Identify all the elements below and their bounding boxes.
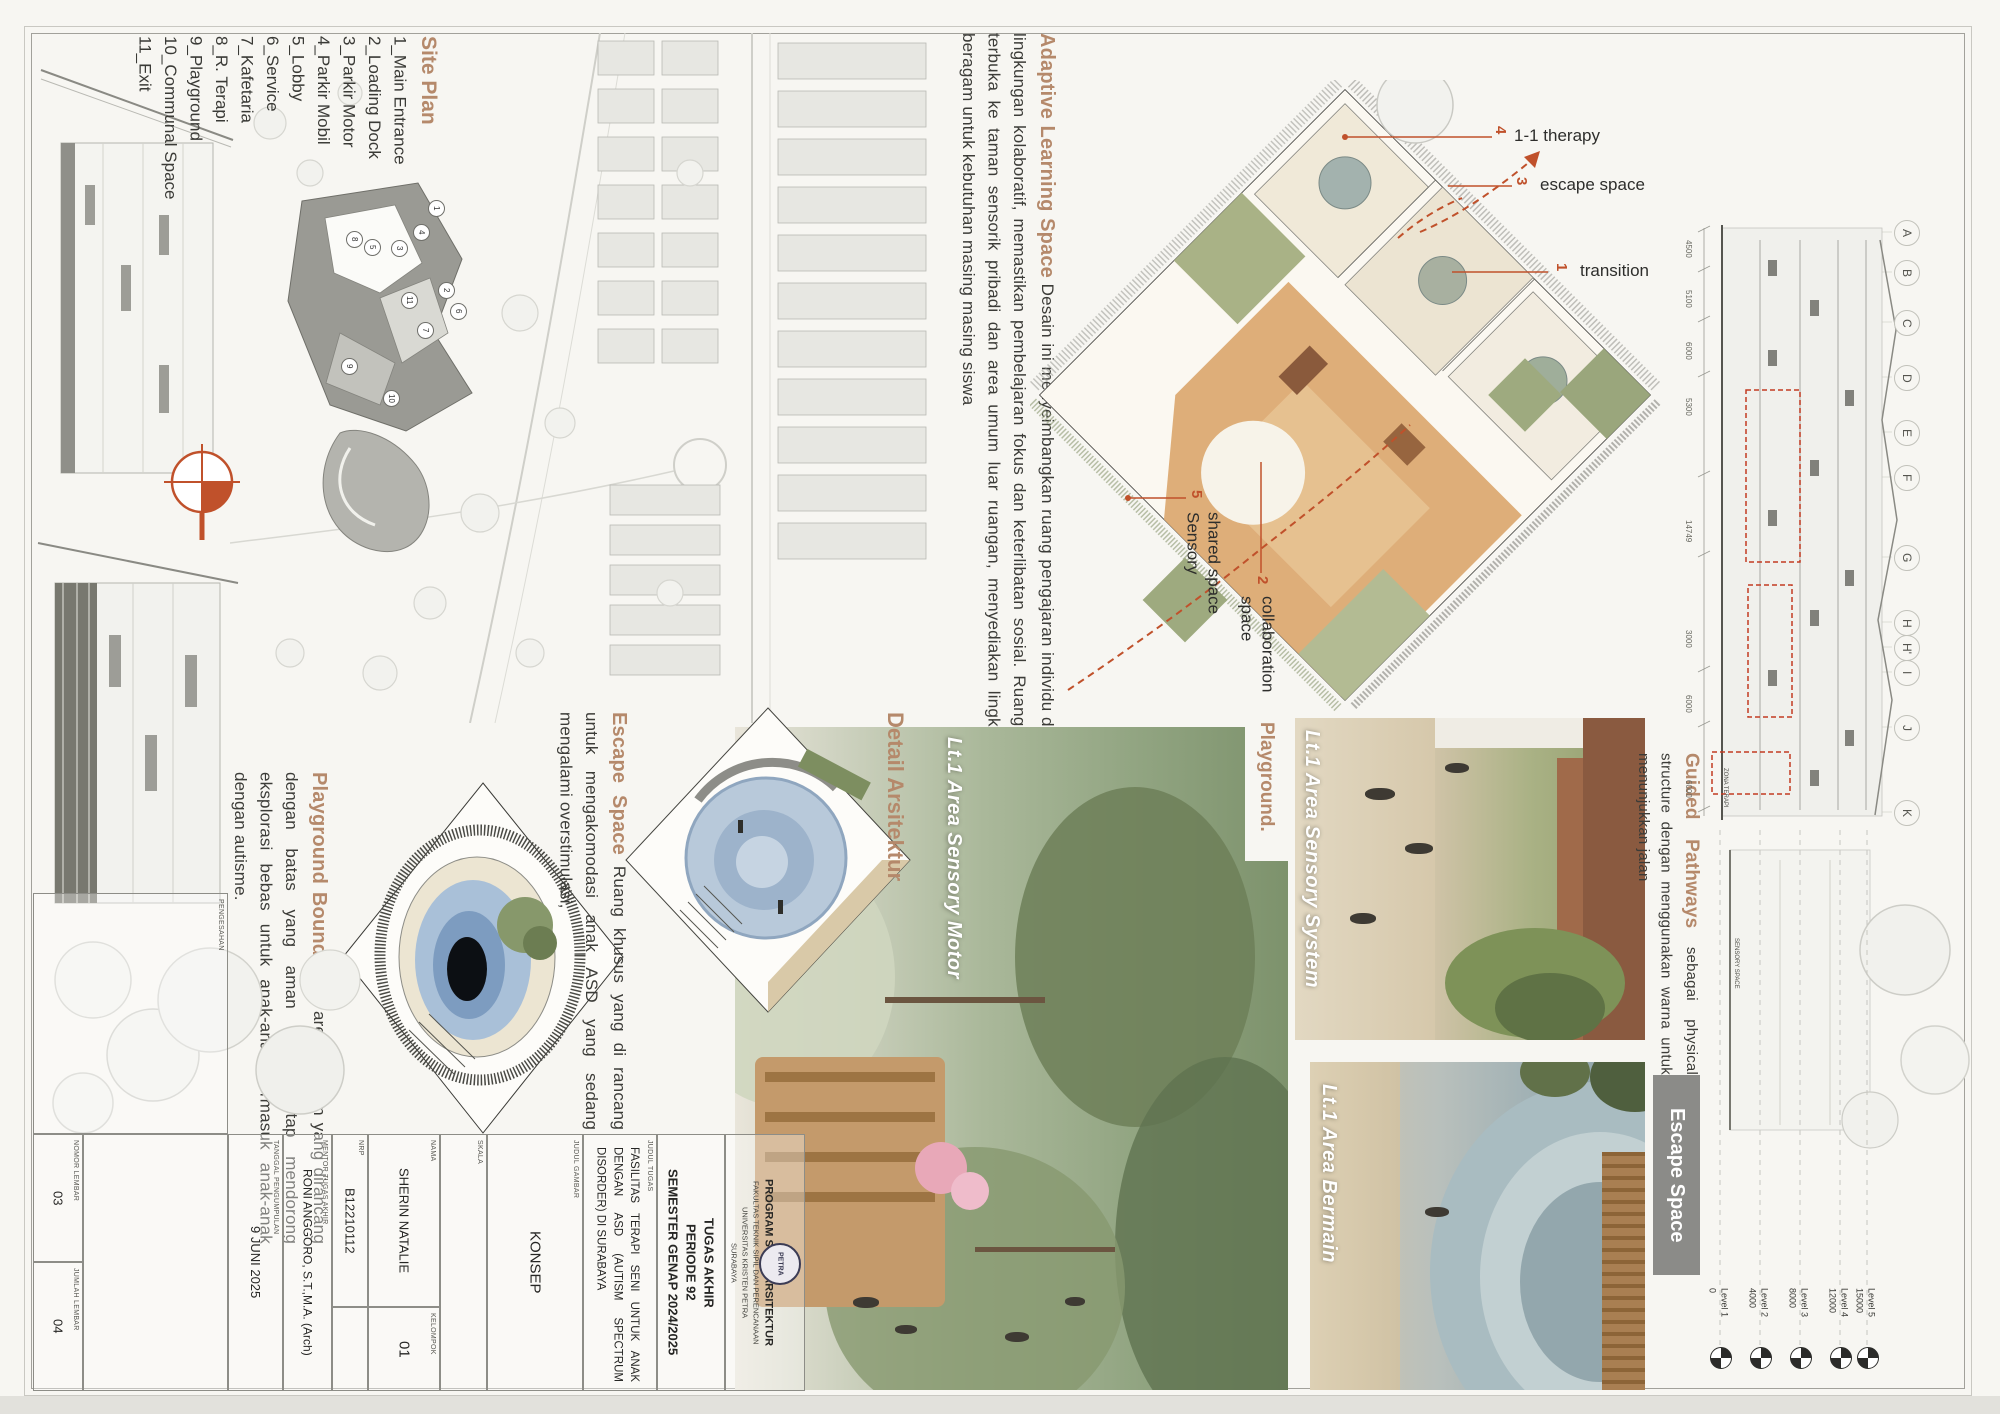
annotation-escape-space: escape space bbox=[1540, 175, 1645, 195]
escape-space-title: Escape Space bbox=[608, 712, 630, 855]
elevation-drawing bbox=[1690, 50, 1970, 1350]
dim-value: 6000 bbox=[1684, 780, 1693, 798]
level-label-5: Level 515000 bbox=[1853, 1288, 1877, 1317]
titleblock-prodi: PROGRAM STUDI ARSITEKTUR FAKULTAS TEKNIK… bbox=[725, 1134, 805, 1391]
grid-bubble-c: C bbox=[1894, 310, 1920, 336]
legend-item: 5_Lobby bbox=[285, 36, 311, 366]
legend-item: 8_R. Terapi bbox=[209, 36, 235, 366]
titleblock-nomor: NOMOR LEMBAR 03 bbox=[33, 1134, 83, 1262]
escape-space-text: Escape Space Ruang khusus yang di rancan… bbox=[538, 712, 634, 1130]
titleblock-judul-tugas: JUDUL TUGAS FASILITAS TERAPI SENI UNTUK … bbox=[583, 1134, 657, 1391]
legend-item: 10_Communal Space bbox=[158, 36, 184, 366]
annotation-number-4: 4 bbox=[1492, 126, 1509, 134]
titleblock-kelompok: KELOMPOK 01 bbox=[368, 1307, 440, 1391]
render-sensory-system bbox=[1295, 718, 1645, 1040]
grid-bubble-d: D bbox=[1894, 365, 1920, 391]
dim-value: 3000 bbox=[1684, 630, 1693, 648]
level-marker-icon bbox=[1790, 1347, 1812, 1369]
legend-item: 4_Parkir Mobil bbox=[311, 36, 337, 366]
legend-item: 1_Main Entrance bbox=[387, 36, 413, 366]
plan-badge-10: 10 bbox=[383, 390, 400, 407]
grid-bubble-i: I bbox=[1894, 660, 1920, 686]
titleblock-empty bbox=[83, 1134, 228, 1391]
render-label-bermain: Lt.1 Area Bermain bbox=[1317, 1084, 1340, 1263]
annotation-number-1: 1 bbox=[1553, 263, 1570, 271]
sensory-space-tag: SENSORY SPACE bbox=[1733, 938, 1739, 989]
titleblock-judul-gambar: JUDUL GAMBAR KONSEP bbox=[487, 1134, 583, 1391]
dim-value: 4500 bbox=[1684, 240, 1693, 258]
level-marker-icon bbox=[1750, 1347, 1772, 1369]
playground-heading-card: Playground. bbox=[1245, 716, 1291, 861]
detail-arsitektur-title: Detail Arsitektur bbox=[882, 712, 908, 997]
dim-value: 6000 bbox=[1684, 695, 1693, 713]
grid-bubble-k: K bbox=[1894, 800, 1920, 826]
level-label-3: Level 38000 bbox=[1786, 1288, 1810, 1317]
level-label-2: Level 24000 bbox=[1746, 1288, 1770, 1317]
dim-value: 6000 bbox=[1684, 342, 1693, 360]
legend-item: 11_Exit bbox=[132, 36, 158, 366]
render-label-sensory-system: Lt.1 Area Sensory System bbox=[1300, 730, 1323, 988]
annotation-number-5: 5 bbox=[1188, 490, 1205, 498]
titleblock-nrp-empty bbox=[332, 1307, 368, 1391]
grid-bubble-h2: H' bbox=[1894, 635, 1920, 661]
titleblock-skala: SKALA bbox=[440, 1134, 487, 1391]
annotation-therapy: 1-1 therapy bbox=[1514, 126, 1600, 146]
dim-value: 5100 bbox=[1684, 290, 1693, 308]
legend-item: 9_Playground bbox=[183, 36, 209, 366]
grid-bubble-j: J bbox=[1894, 715, 1920, 741]
axon-escape-space bbox=[618, 700, 918, 1020]
university-logo: PETRA bbox=[759, 1243, 801, 1285]
level-marker-icon bbox=[1830, 1347, 1852, 1369]
render-label-sensory-motor: Lt.1 Area Sensory Motor bbox=[942, 737, 965, 979]
grid-bubble-h: H bbox=[1894, 610, 1920, 636]
site-plan-legend: Site Plan 1_Main Entrance 2_Loading Dock… bbox=[142, 36, 444, 366]
plan-badge-6: 6 bbox=[450, 303, 467, 320]
dim-value: 14749 bbox=[1684, 520, 1693, 542]
grid-bubble-e: E bbox=[1894, 420, 1920, 446]
level-label-4: Level 412000 bbox=[1826, 1288, 1850, 1317]
zona-terapi-tag: ZONA TERAPI bbox=[1722, 768, 1728, 808]
titleblock-mentor: MENTOR TUGAS AKHIR RONI ANGGORO, S.T.,M.… bbox=[283, 1134, 332, 1391]
presentation-board: 1 2 3 4 5 6 7 8 9 10 11 Site Plan 1_Main… bbox=[0, 0, 2000, 1414]
titleblock-jumlah: JUMLAH LEMBAR 04 bbox=[33, 1262, 83, 1391]
level-marker-icon bbox=[1857, 1347, 1879, 1369]
titleblock-tanggal: TANGGAL PENGUMPULAN 9 JUNI 2025 bbox=[228, 1134, 283, 1391]
escape-space-bar-label: Escape Space bbox=[1665, 1108, 1688, 1243]
legend-item: 2_Loading Dock bbox=[362, 36, 388, 366]
titleblock-nama: NAMA SHERIN NATALIE bbox=[368, 1134, 440, 1307]
annotation-collaboration: collaboration space bbox=[1236, 596, 1279, 721]
grid-bubble-g: G bbox=[1894, 545, 1920, 571]
grid-bubble-f: F bbox=[1894, 465, 1920, 491]
level-marker-icon bbox=[1710, 1347, 1732, 1369]
level-label-1: Level 10 bbox=[1706, 1288, 1730, 1317]
annotation-sensory-shared: Sensory shared space bbox=[1182, 512, 1225, 652]
titleblock-pengesahan: PENGESAHAN bbox=[33, 893, 228, 1134]
legend-item: 6_Service bbox=[260, 36, 286, 366]
bottom-strip bbox=[0, 1396, 2000, 1414]
annotation-transition: transition bbox=[1580, 261, 1649, 281]
render-area-bermain bbox=[1310, 1062, 1645, 1390]
north-compass-icon bbox=[160, 440, 244, 544]
grid-bubble-b: B bbox=[1894, 260, 1920, 286]
titleblock-tugas-akhir: TUGAS AKHIR PERIODE 92 SEMESTER GENAP 20… bbox=[657, 1134, 725, 1391]
site-plan-title: Site Plan bbox=[413, 36, 445, 362]
legend-item: 3_Parkir Motor bbox=[336, 36, 362, 366]
grid-bubble-a: A bbox=[1894, 220, 1920, 246]
playground-heading: Playground. bbox=[1255, 722, 1277, 832]
titleblock-nrp: NRP B12210112 bbox=[332, 1134, 368, 1307]
dim-value: 5300 bbox=[1684, 398, 1693, 416]
annotation-number-3: 3 bbox=[1513, 177, 1530, 185]
legend-item: 7_Kafetaria bbox=[234, 36, 260, 366]
annotation-number-2: 2 bbox=[1254, 576, 1271, 584]
